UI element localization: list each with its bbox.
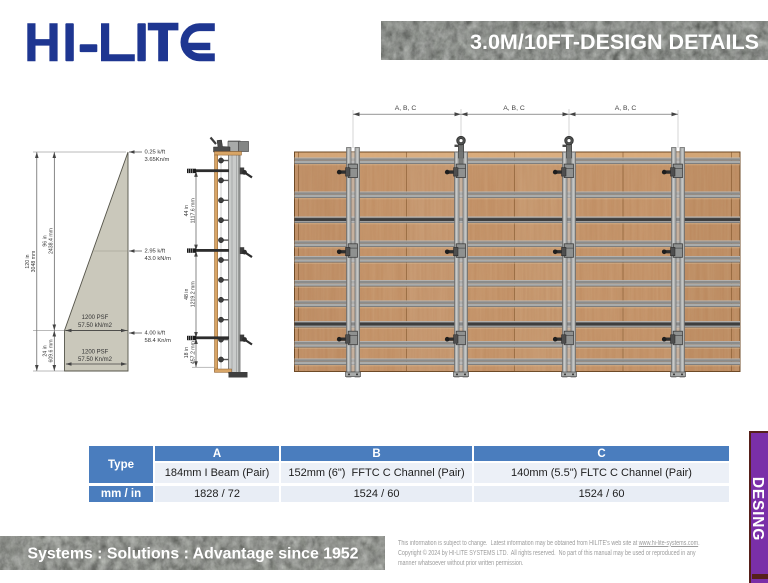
svg-text:3.65Kn/m: 3.65Kn/m bbox=[145, 157, 170, 163]
svg-text:3.0M/10FT-DESIGN DETAILS: 3.0M/10FT-DESIGN DETAILS bbox=[470, 30, 759, 54]
svg-text:3048 mm: 3048 mm bbox=[31, 251, 37, 273]
svg-text:DESING: DESING bbox=[749, 477, 766, 541]
svg-text:58.4 Kn/m: 58.4 Kn/m bbox=[145, 338, 172, 344]
svg-text:4.00 k/ft: 4.00 k/ft bbox=[145, 331, 166, 337]
svg-text:120 in: 120 in bbox=[25, 254, 31, 268]
svg-text:457.2 mm: 457.2 mm bbox=[190, 341, 196, 364]
svg-text:A, B, C: A, B, C bbox=[395, 105, 417, 112]
svg-text:A, B, C: A, B, C bbox=[615, 105, 637, 112]
svg-text:1200 PSF: 1200 PSF bbox=[82, 315, 109, 321]
svg-text:57.50 kN/m2: 57.50 kN/m2 bbox=[78, 323, 113, 329]
svg-text:Systems : Solutions : Advantag: Systems : Solutions : Advantage since 19… bbox=[28, 545, 359, 562]
svg-text:24 in: 24 in bbox=[42, 345, 48, 356]
svg-text:48 in: 48 in bbox=[184, 289, 190, 300]
svg-text:0.25 k/ft: 0.25 k/ft bbox=[145, 150, 166, 156]
svg-text:609.6 mm: 609.6 mm bbox=[49, 339, 55, 362]
svg-text:43.0 kN/m: 43.0 kN/m bbox=[145, 256, 172, 262]
svg-text:1200 PSF: 1200 PSF bbox=[82, 350, 109, 356]
svg-text:18 in: 18 in bbox=[184, 347, 190, 358]
svg-text:1117.6 mm: 1117.6 mm bbox=[190, 198, 196, 223]
svg-text:2.95 k/ft: 2.95 k/ft bbox=[145, 249, 166, 255]
svg-text:2438.4 mm: 2438.4 mm bbox=[49, 228, 55, 254]
svg-text:57.50 Kn/m2: 57.50 Kn/m2 bbox=[78, 357, 113, 363]
svg-text:A, B, C: A, B, C bbox=[503, 105, 525, 112]
svg-text:96 in: 96 in bbox=[42, 235, 48, 246]
svg-text:44 in: 44 in bbox=[184, 205, 190, 216]
svg-text:1219.2 mm: 1219.2 mm bbox=[190, 281, 196, 307]
